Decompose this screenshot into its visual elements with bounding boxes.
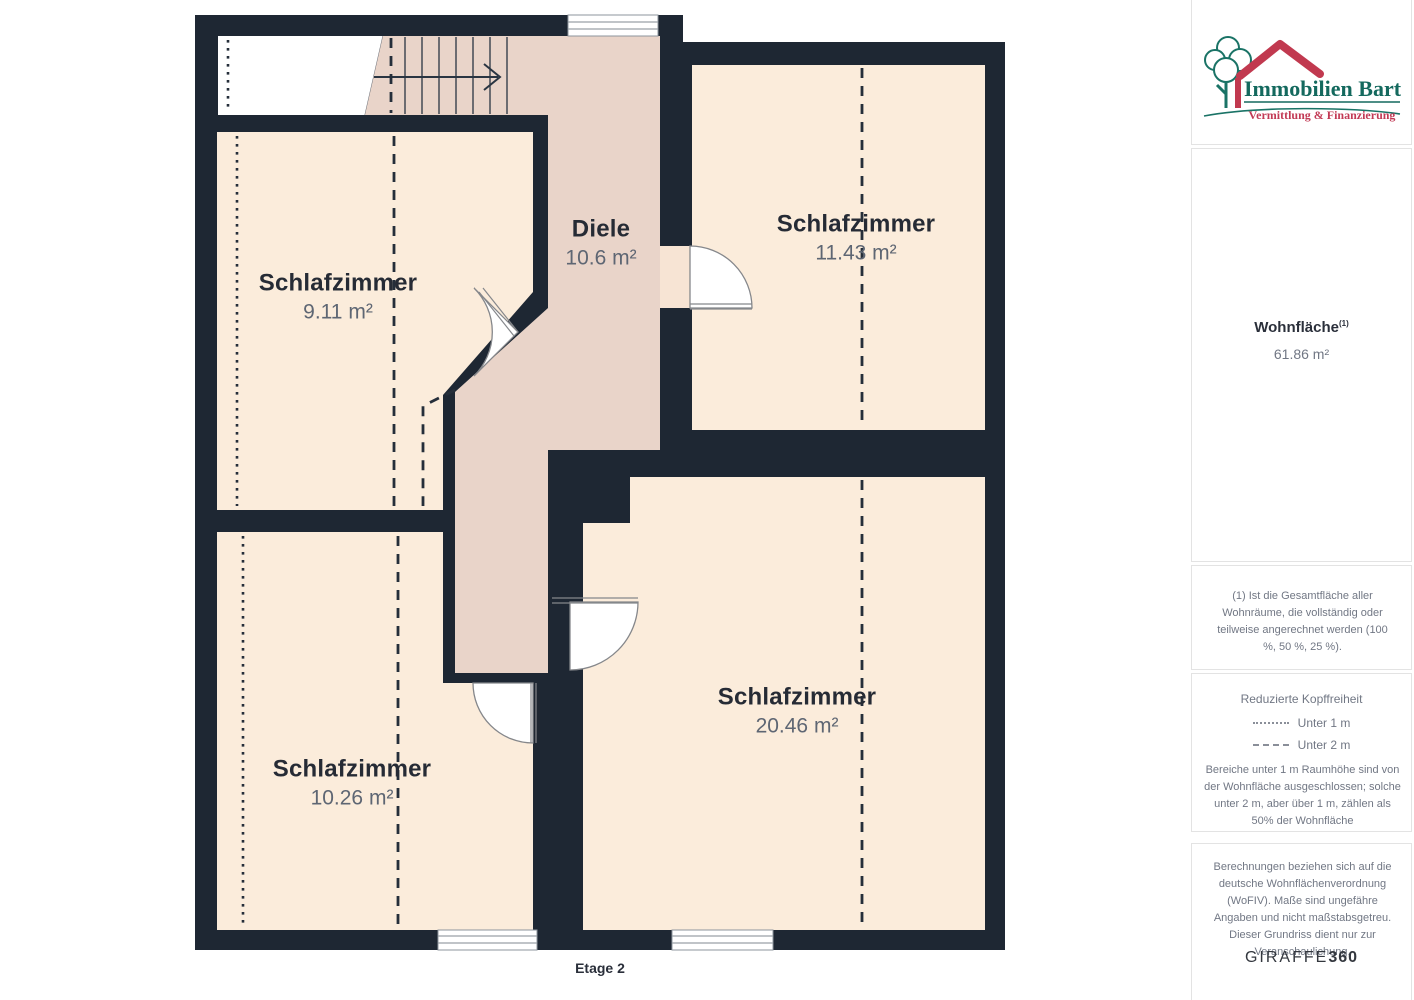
- living-area-label-text: Wohnfläche: [1254, 319, 1339, 336]
- footnote-card: (1) Ist die Gesamtfläche aller Wohnräume…: [1191, 565, 1412, 670]
- living-area-value: 61.86 m²: [1192, 346, 1411, 362]
- tree-trunk: [1217, 82, 1226, 108]
- legend-item-under-2m: Unter 2 m: [1192, 738, 1411, 752]
- logo-red-post: [1235, 78, 1241, 108]
- stair-void: [218, 36, 383, 115]
- disclaimer-text: Berechnungen beziehen sich auf die deuts…: [1206, 859, 1399, 961]
- door-gap-1143: [660, 246, 692, 308]
- room-area: 20.46 m²: [718, 715, 876, 739]
- room-label-diele: Diele 10.6 m²: [565, 216, 636, 271]
- room-area: 11.43 m²: [777, 242, 935, 266]
- window-top: [568, 15, 658, 36]
- room-name: Schlafzimmer: [273, 756, 431, 784]
- brand-name: GIRAFFE: [1245, 949, 1328, 966]
- floor-plan: Schlafzimmer 9.11 m² Diele 10.6 m² Schla…: [0, 0, 1190, 1000]
- dashed-line-icon: [1253, 744, 1289, 746]
- living-area-summary: Wohnfläche(1) 61.86 m²: [1192, 319, 1411, 362]
- window-bottom-right: [672, 930, 773, 950]
- sidebar: Immobilien Bart Vermittlung & Finanzieru…: [1191, 0, 1414, 1000]
- brand-suffix: 360: [1328, 949, 1358, 966]
- room-name: Schlafzimmer: [777, 211, 935, 239]
- room-label-schlafzimmer-2046: Schlafzimmer 20.46 m²: [718, 684, 876, 739]
- room-label-schlafzimmer-1026: Schlafzimmer 10.26 m²: [273, 756, 431, 811]
- legend-item-under-1m: Unter 1 m: [1192, 716, 1411, 730]
- room-name: Schlafzimmer: [718, 684, 876, 712]
- legend-title: Reduzierte Kopffreiheit: [1192, 692, 1411, 706]
- giraffe360-brand: GIRAFFE360: [1192, 949, 1411, 967]
- legend-item-label: Unter 1 m: [1298, 716, 1351, 730]
- room-area: 10.6 m²: [565, 247, 636, 271]
- living-area-card: Wohnfläche(1) 61.86 m²: [1191, 148, 1412, 562]
- room-label-schlafzimmer-1143: Schlafzimmer 11.43 m²: [777, 211, 935, 266]
- legend-card: Reduzierte Kopffreiheit Unter 1 m Unter …: [1191, 673, 1412, 832]
- legend-note: Bereiche unter 1 m Raumhöhe sind von der…: [1204, 762, 1401, 830]
- dotted-line-icon: [1253, 722, 1289, 724]
- logo-tagline: Vermittlung & Finanzierung: [1249, 108, 1396, 122]
- living-area-label: Wohnfläche(1): [1192, 319, 1411, 336]
- window-bottom-left: [438, 930, 537, 950]
- room-name: Schlafzimmer: [259, 270, 417, 298]
- room-label-schlafzimmer-911: Schlafzimmer 9.11 m²: [259, 270, 417, 325]
- logo-card: Immobilien Bart Vermittlung & Finanzieru…: [1191, 0, 1412, 145]
- company-logo: Immobilien Bart Vermittlung & Finanzieru…: [1202, 20, 1402, 125]
- room-name: Diele: [565, 216, 636, 244]
- floor-plan-drawing: [0, 0, 1190, 1000]
- floor-caption: Etage 2: [575, 960, 625, 976]
- footnote-text: (1) Ist die Gesamtfläche aller Wohnräume…: [1212, 588, 1393, 656]
- room-area: 10.26 m²: [273, 787, 431, 811]
- living-area-footnote-marker: (1): [1339, 319, 1349, 328]
- logo-title: Immobilien Bart: [1244, 76, 1402, 101]
- legend-item-label: Unter 2 m: [1298, 738, 1351, 752]
- disclaimer-card: Berechnungen beziehen sich auf die deuts…: [1191, 843, 1412, 1000]
- room-area: 9.11 m²: [259, 301, 417, 325]
